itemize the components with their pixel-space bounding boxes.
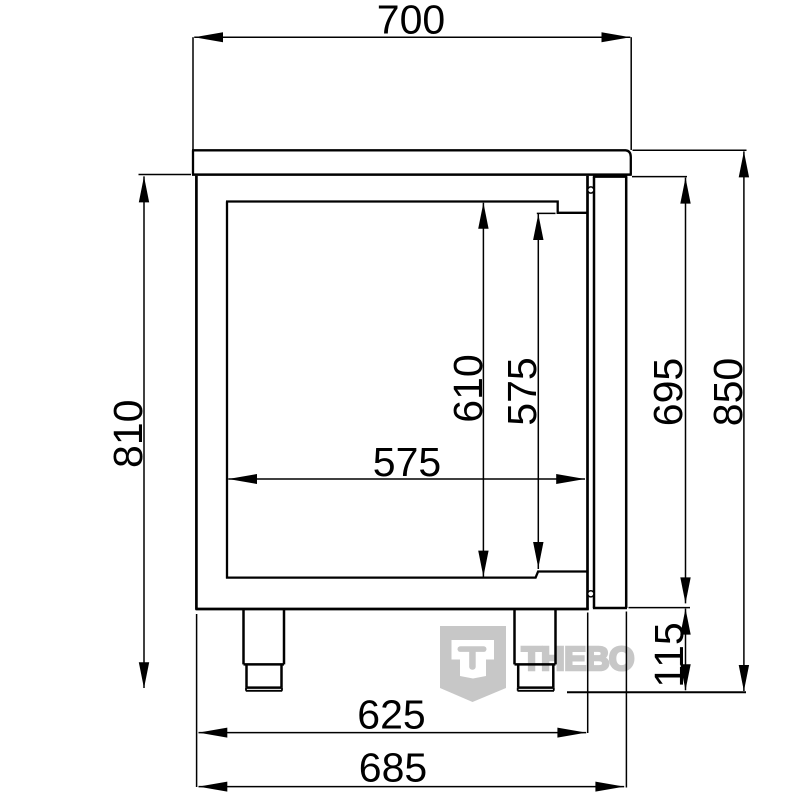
svg-text:575: 575 (373, 439, 441, 485)
svg-text:810: 810 (105, 400, 151, 468)
svg-text:700: 700 (377, 0, 445, 43)
svg-text:THEBO: THEBO (522, 640, 635, 677)
svg-text:695: 695 (645, 358, 691, 426)
svg-text:575: 575 (499, 357, 545, 425)
svg-text:685: 685 (359, 745, 427, 791)
svg-text:115: 115 (646, 622, 692, 687)
svg-text:850: 850 (705, 358, 751, 426)
svg-text:625: 625 (357, 692, 425, 738)
svg-text:610: 610 (445, 354, 491, 422)
